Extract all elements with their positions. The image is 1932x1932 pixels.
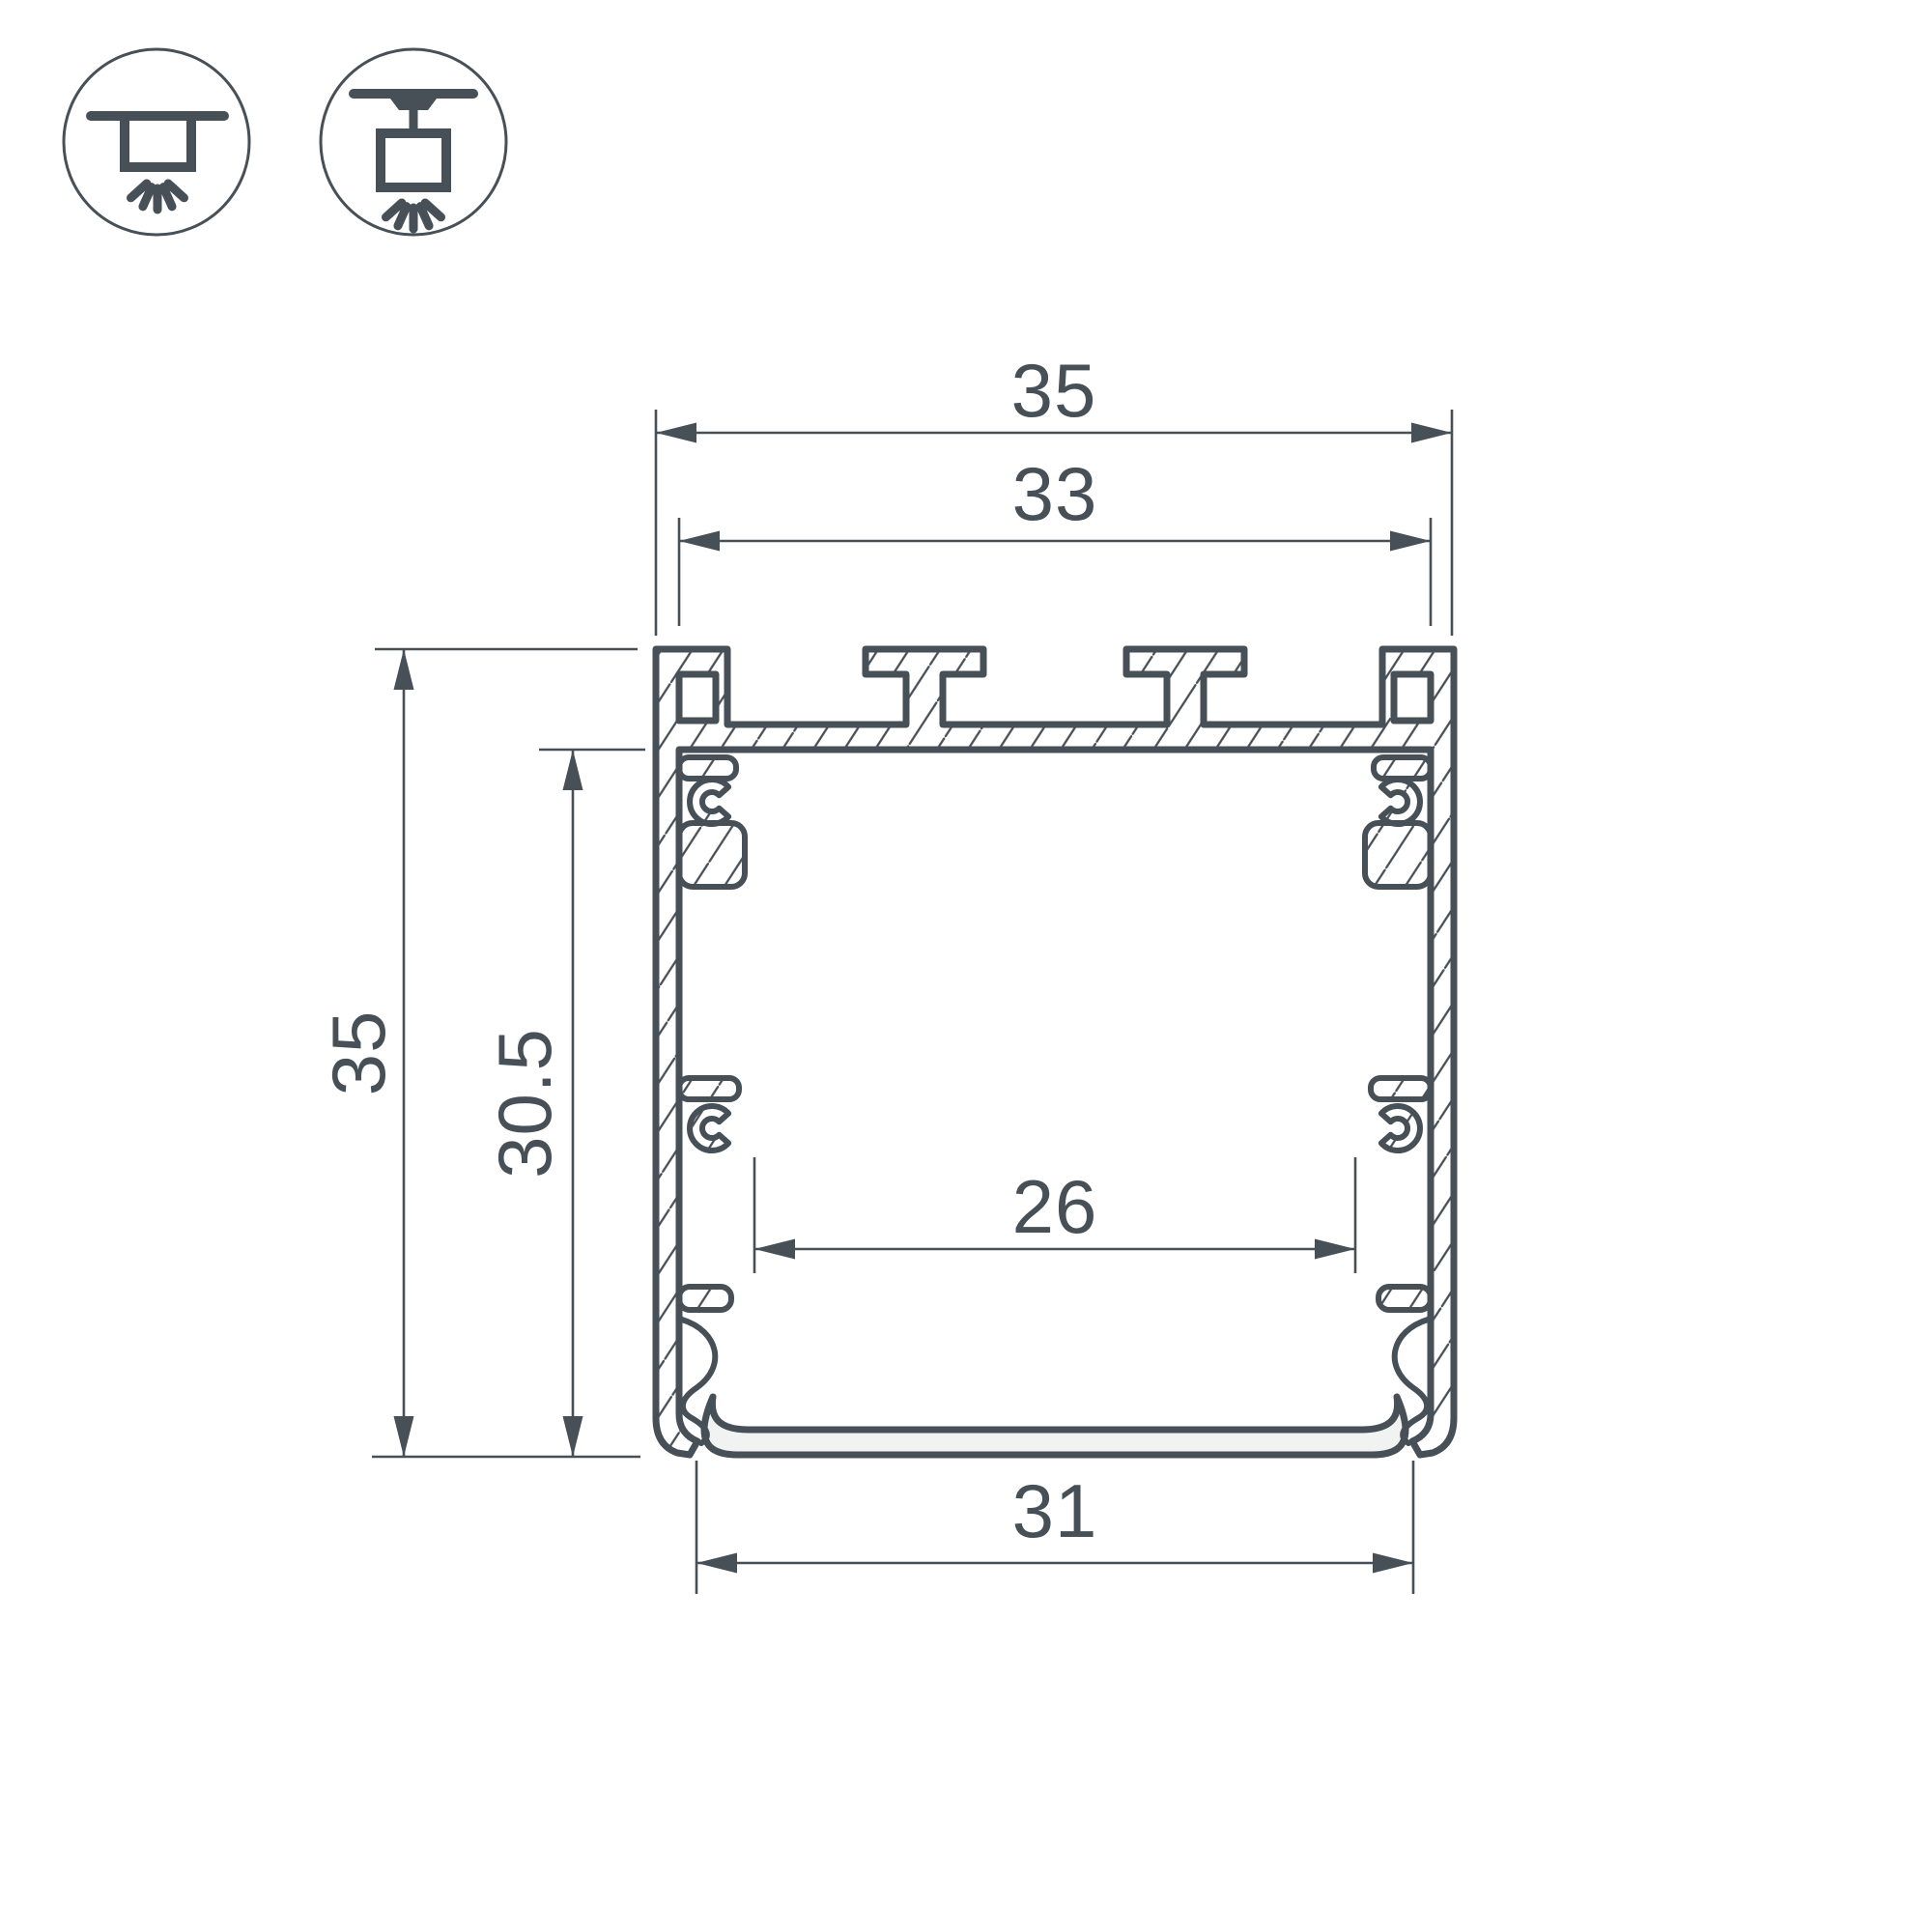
dimension-label-outer-height: 35 bbox=[316, 1010, 401, 1096]
dimension-outer-height: 35 bbox=[316, 649, 640, 1457]
dimension-inner-bottom-width: 26 bbox=[754, 1157, 1355, 1273]
drawing-page: 35 33 35 30.5 26 bbox=[0, 0, 1932, 1932]
dimension-bottom-width: 31 bbox=[696, 1461, 1413, 1594]
profile-cross-section-drawing: 35 33 35 30.5 26 bbox=[0, 0, 1932, 1932]
pendant-mount-light-icon bbox=[321, 49, 506, 235]
dimension-top-inner-width: 33 bbox=[679, 451, 1431, 626]
dimension-inner-height: 30.5 bbox=[482, 750, 645, 1457]
dimension-label-bottom-width: 31 bbox=[1012, 1468, 1098, 1553]
dimension-label-top-inner-width: 33 bbox=[1012, 451, 1098, 536]
diffuser-tray bbox=[704, 1397, 1406, 1455]
surface-mount-light-icon bbox=[64, 49, 249, 235]
dimension-label-inner-bottom-width: 26 bbox=[1012, 1164, 1098, 1249]
dimension-label-outer-width: 35 bbox=[1011, 348, 1097, 433]
dimension-label-inner-height: 30.5 bbox=[482, 1028, 567, 1179]
screw-bosses bbox=[690, 780, 1420, 1151]
profile-body bbox=[656, 649, 1454, 1455]
spring-clips bbox=[682, 1320, 1428, 1443]
